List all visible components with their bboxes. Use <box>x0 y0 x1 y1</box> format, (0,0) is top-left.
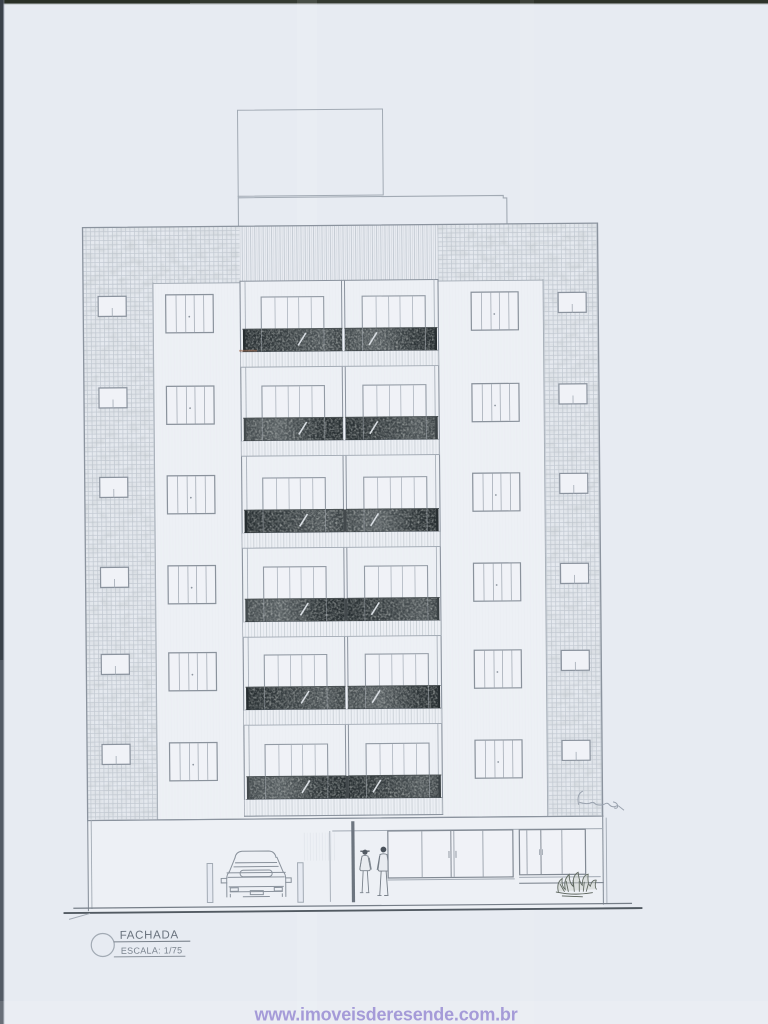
svg-text:www.imoveisderesende.com.br: www.imoveisderesende.com.br <box>254 1005 518 1024</box>
svg-text:FACHADA: FACHADA <box>120 929 179 942</box>
svg-text:ESCALA: 1/75: ESCALA: 1/75 <box>121 945 183 956</box>
